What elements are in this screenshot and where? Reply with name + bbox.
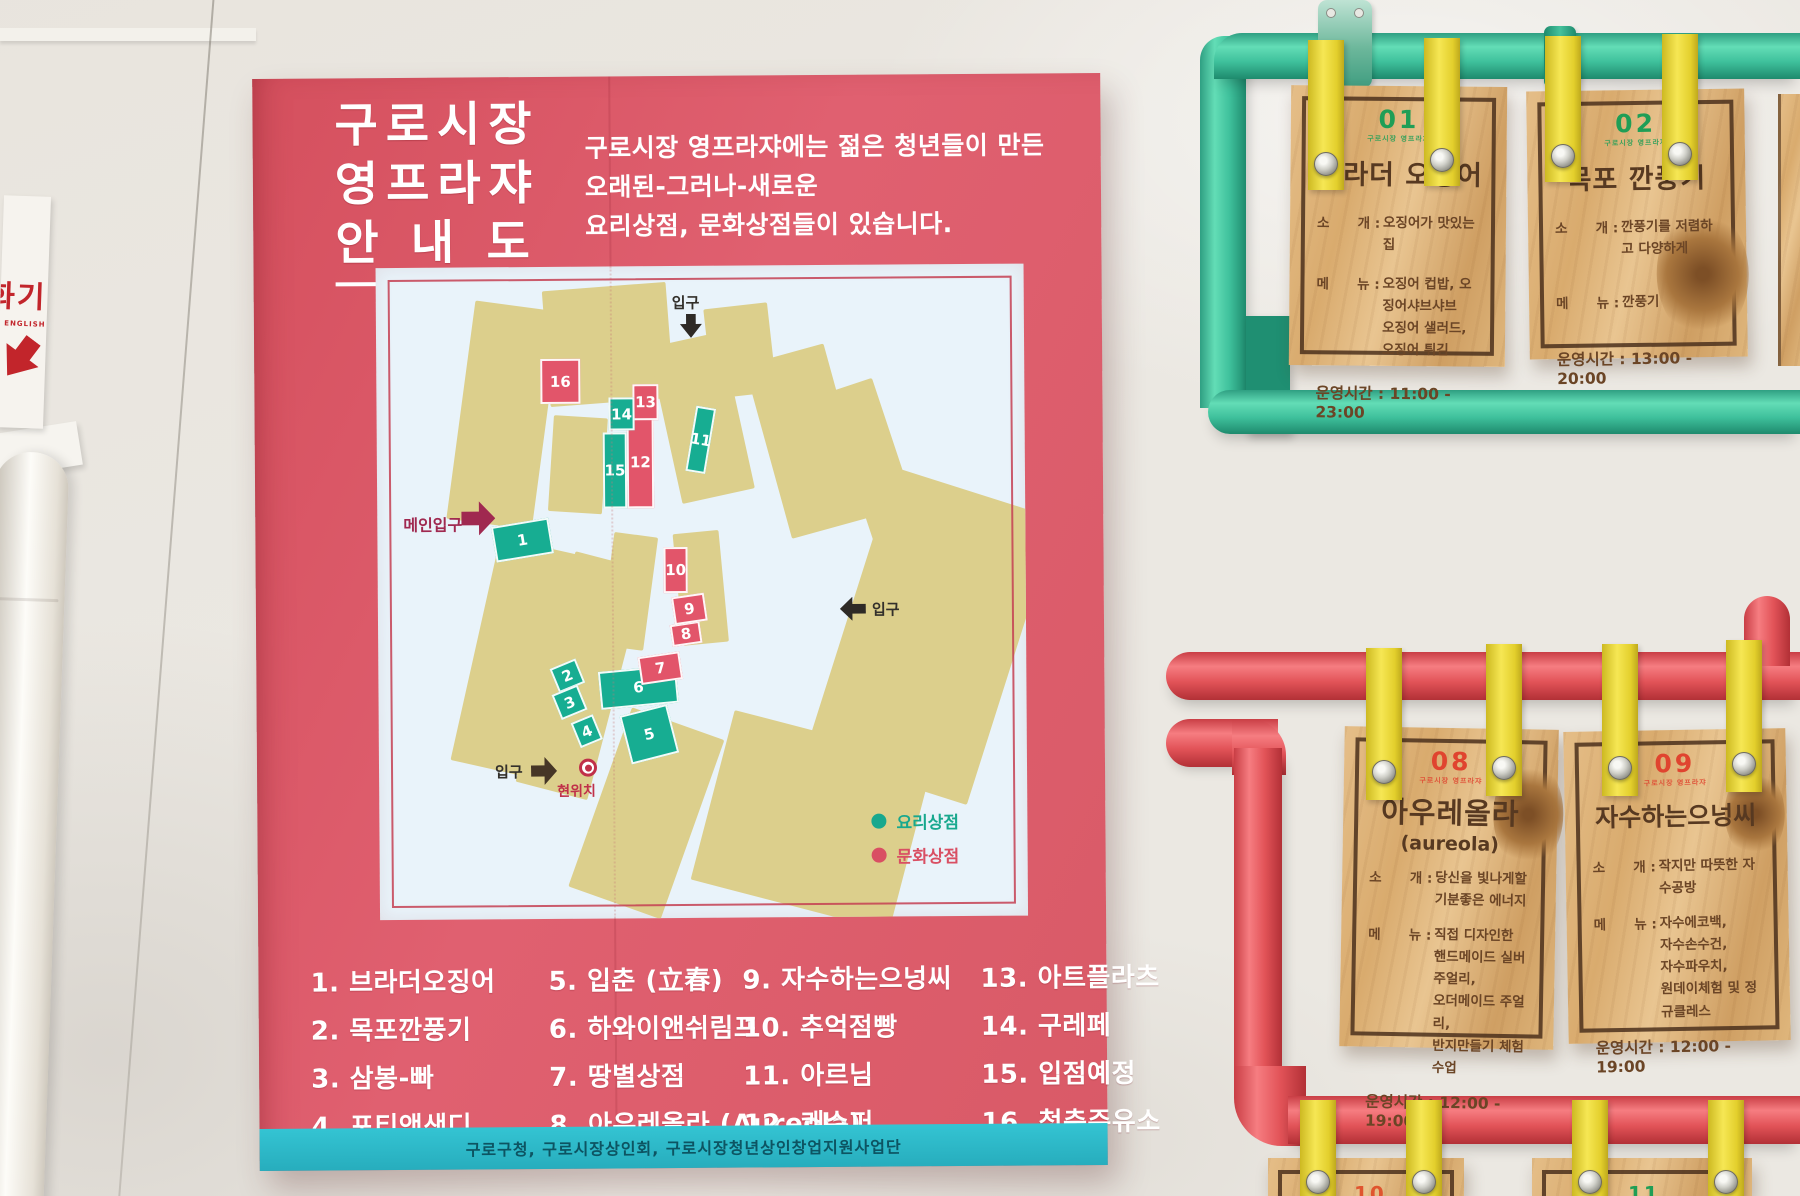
sign-strap — [1406, 1100, 1442, 1196]
poster-description-line2: 오래된-그러나-새로운 — [585, 164, 1045, 206]
sign-subtitle: (aureola) — [1370, 832, 1530, 857]
directory-item: 15. 입점예정 — [981, 1053, 1160, 1091]
green-pipe-bottom — [1208, 390, 1800, 434]
sign-menu-label: 메 뉴 : — [1366, 922, 1435, 1079]
sign-strap — [1366, 648, 1402, 800]
sign-strap — [1726, 640, 1762, 792]
directory-item: 1. 브라더오징어 — [310, 961, 495, 999]
bolt-icon — [1412, 1170, 1436, 1194]
sign-number: 11 — [1628, 1182, 1660, 1196]
directory-column-4: 13. 아트플라츠 14. 구레페 15. 입점예정 16. 청춘주유소 — [980, 957, 1160, 1139]
sign-strap — [1662, 34, 1698, 180]
current-location-label: 현위치 — [557, 781, 596, 801]
fire-arrow-icon — [0, 328, 50, 387]
legend-teal-dot-icon — [871, 814, 886, 829]
sign-menu: 오징어 컵밥, 오징어샤브샤브 오징어 샐러드, 오징어 튀김 — [1382, 272, 1479, 362]
sign-title: 자수하는으넝씨 — [1591, 796, 1760, 835]
market-guide-wall-photo: 소화기 ENGLISH 구로시장 영프라쟈 안 내 도 구로시장 영프라쟈에는 … — [0, 0, 1800, 1196]
red-pipe-top — [1166, 652, 1800, 700]
directory-item: 9. 자수하는으넝씨 — [742, 958, 952, 996]
bolt-icon — [1668, 142, 1692, 166]
map-block — [548, 415, 608, 514]
sign-strap — [1602, 644, 1638, 796]
poster-description-line3: 요리상점, 문화상점들이 있습니다. — [585, 203, 1045, 245]
sign-number: 10 — [1354, 1182, 1386, 1196]
map-block — [446, 301, 560, 530]
sign-intro: 당신을 빛나게할 기분좋은 에너지 — [1435, 867, 1527, 913]
sign-menu-label: 메 뉴 : — [1316, 272, 1383, 362]
poster-description-line1: 구로시장 영프라쟈에는 젊은 청년들이 만든 — [585, 125, 1045, 167]
directory-item: 2. 목포깐풍기 — [311, 1009, 496, 1047]
sign-strap — [1300, 1100, 1336, 1196]
sign-intro: 오징어가 맛있는 집 — [1383, 212, 1479, 257]
map-legend: 요리상점 문화상점 — [871, 808, 959, 868]
legend-culture-label: 문화상점 — [897, 842, 960, 867]
directory-item: 10. 추억점빵 — [743, 1006, 953, 1044]
green-pipe-top — [1214, 33, 1800, 79]
legend-cooking-shops: 요리상점 — [871, 808, 959, 834]
bolt-icon — [1492, 756, 1516, 780]
directory-column-3: 9. 자수하는으넝씨 10. 추억점빵 11. 아르님 12. 쾌슈퍼 — [742, 958, 953, 1140]
legend-red-dot-icon — [872, 848, 887, 863]
bolt-icon — [1372, 760, 1396, 784]
sign-intro-label: 소 개 : — [1317, 211, 1383, 256]
market-map: 1 2 3 4 5 6 7 8 9 10 11 12 13 14 15 16 입… — [376, 264, 1029, 921]
sign-hours: 운영시간 : 11:00 - 23:00 — [1315, 381, 1477, 422]
map-block — [599, 532, 658, 651]
directory-item: 14. 구레페 — [981, 1005, 1160, 1043]
entrance-main-label: 메인입구 — [403, 512, 462, 536]
pipe-seam — [0, 597, 58, 602]
sign-intro: 깐풍기를 저렴하고 다양하게 — [1621, 215, 1720, 261]
sign-hours: 운영시간 : 12:00 - 19:00 — [1596, 1033, 1765, 1076]
entrance-top-arrow-icon — [680, 314, 702, 338]
map-shop-16: 16 — [540, 359, 580, 404]
poster-description: 구로시장 영프라쟈에는 젊은 청년들이 만든 오래된-그러나-새로운 요리상점,… — [585, 125, 1046, 245]
sign-menu: 자수에코백, 자수손수건, 자수파우치, 원데이체험 및 정규클레스 — [1659, 910, 1763, 1023]
sign-hours: 운영시간 : 12:00 - 19:00 — [1365, 1090, 1526, 1133]
bolt-icon — [1608, 756, 1632, 780]
entrance-bottom-label: 입구 — [495, 761, 523, 782]
poster-title: 구로시장 영프라쟈 안 내 도 — [334, 95, 540, 286]
legend-culture-shops: 문화상점 — [872, 842, 960, 868]
sign-intro-label: 소 개 : — [1369, 866, 1436, 912]
sign-menu: 직접 디자인한 핸드메이드 실버주얼리, 오더메이드 주얼리, 반지만들기 체험… — [1432, 923, 1529, 1080]
sign-strap — [1545, 36, 1581, 182]
sign-strap — [1424, 38, 1460, 186]
current-location-icon — [579, 759, 597, 777]
map-shop-15: 15 — [603, 432, 628, 508]
directory-item: 3. 삼봉-빠 — [311, 1057, 496, 1095]
bolt-icon — [1314, 152, 1338, 176]
directory-column-1: 1. 브라더오징어 2. 목포깐풍기 3. 삼봉-빠 4. 포티앤샌디 — [310, 961, 496, 1143]
sign-intro-label: 소 개 : — [1592, 855, 1659, 901]
legend-cooking-label: 요리상점 — [896, 808, 959, 833]
sign-intro: 작지만 따뜻한 자수공방 — [1658, 854, 1761, 900]
entrance-right-label: 입구 — [872, 598, 900, 619]
bolt-icon — [1430, 148, 1454, 172]
directory-item: 11. 아르님 — [743, 1054, 953, 1092]
wall-molding — [0, 28, 256, 41]
sign-strap — [1308, 40, 1344, 190]
shop-sign-partial-right — [1778, 94, 1800, 366]
poster-footer-bar: 구로구청, 구로시장상인회, 구로시장청년상인창업지원사업단 — [260, 1123, 1108, 1171]
sign-strap — [1572, 1100, 1608, 1196]
poster-title-line1: 구로시장 — [334, 95, 539, 156]
guide-map-poster: 구로시장 영프라쟈 안 내 도 구로시장 영프라쟈에는 젊은 청년들이 만든 오… — [252, 73, 1108, 1171]
sign-menu-label: 메 뉴 : — [1593, 912, 1661, 1024]
map-shop-13: 13 — [632, 384, 658, 420]
bolt-icon — [1732, 752, 1756, 776]
fire-sign-text: 소화기 — [0, 269, 47, 317]
sign-strap — [1708, 1100, 1744, 1196]
bolt-icon — [1551, 144, 1575, 168]
entrance-top-label: 입구 — [672, 292, 700, 313]
bolt-icon — [1714, 1170, 1738, 1194]
sign-menu: 깐풍기 — [1622, 290, 1660, 313]
map-shop-9: 9 — [671, 593, 708, 626]
sign-hours: 운영시간 : 13:00 - 20:00 — [1557, 346, 1722, 388]
sign-strap — [1486, 644, 1522, 796]
bolt-icon — [1306, 1170, 1330, 1194]
sign-intro-label: 소 개 : — [1555, 216, 1622, 261]
bolt-icon — [1578, 1170, 1602, 1194]
poster-footer-text: 구로구청, 구로시장상인회, 구로시장청년상인창업지원사업단 — [466, 1133, 902, 1160]
poster-title-line2: 영프라쟈 — [335, 154, 540, 215]
green-pipe-vertical — [1200, 36, 1246, 408]
fire-sign-subtext: ENGLISH — [0, 317, 46, 329]
directory-item: 13. 아트플라츠 — [980, 957, 1159, 995]
map-shop-10: 10 — [663, 547, 687, 593]
sign-menu-label: 메 뉴 : — [1556, 291, 1622, 314]
fire-extinguisher-sign: 소화기 ENGLISH — [0, 195, 51, 428]
red-pipe-vertical — [1234, 748, 1282, 1098]
